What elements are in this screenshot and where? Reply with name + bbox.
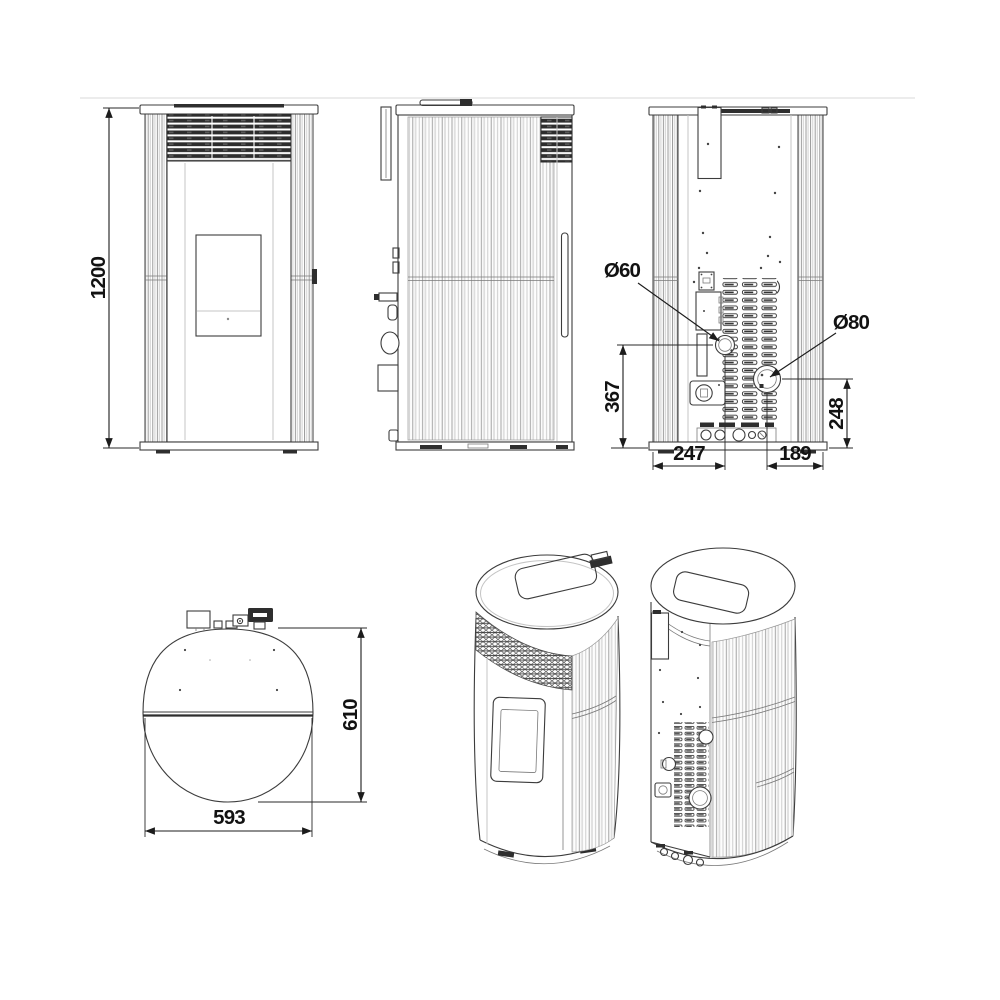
rear-terminal-box — [696, 272, 723, 330]
side-view — [374, 99, 574, 450]
rear-slot — [697, 334, 707, 376]
flue-outlet-port — [754, 366, 781, 393]
dim-flue-height-label: 248 — [825, 398, 848, 430]
front-view — [140, 104, 318, 454]
rear-hopper-lid — [698, 108, 721, 179]
front-door-panel — [167, 161, 291, 442]
rear-perspective-box — [652, 613, 669, 659]
rear-view — [649, 106, 827, 454]
dim-intake-diameter-label: Ø60 — [604, 259, 641, 282]
side-top-cap — [396, 105, 574, 115]
front-right-column — [291, 114, 313, 442]
stove-dimension-diagram: 1200 — [0, 0, 1000, 1000]
perspective-door-window — [491, 697, 546, 783]
rear-perspective-valve — [663, 758, 676, 771]
dim-height-label: 1200 — [87, 256, 110, 299]
top-rear-fittings — [187, 608, 273, 631]
dim-intake-height-label: 367 — [601, 381, 624, 413]
dim-flue-offset-label: 189 — [779, 442, 811, 465]
dim-overall-height: 1200 — [87, 108, 139, 448]
door-handle — [312, 269, 317, 284]
perspective-side-flutes — [572, 618, 618, 852]
dim-intake-offset-label: 247 — [673, 442, 705, 465]
side-flutes — [408, 117, 554, 440]
rear-perspective-socket — [655, 783, 671, 797]
chimney-stub — [588, 551, 612, 569]
dim-depth-label: 610 — [339, 699, 362, 731]
rear-perspective-flutes — [712, 619, 795, 857]
air-intake-port — [716, 336, 735, 355]
dim-width-label: 593 — [213, 806, 245, 829]
front-top-grille — [167, 114, 291, 161]
front-cap-trim — [174, 104, 284, 108]
rear-perspective-bottom-connections — [656, 844, 704, 866]
front-left-column — [145, 114, 167, 442]
perspective-rear-view — [651, 548, 796, 866]
dim-flue-diameter-label: Ø80 — [833, 311, 870, 334]
power-socket — [690, 381, 725, 405]
rear-top-ellipse — [651, 548, 795, 624]
top-view — [143, 608, 313, 802]
drawing-canvas: 1200 — [0, 0, 1000, 1000]
front-base — [140, 442, 318, 450]
side-rear-fittings — [374, 107, 399, 441]
rear-perspective-port-small — [699, 730, 713, 744]
perspective-front-view — [474, 551, 620, 864]
rear-right-column — [798, 115, 823, 442]
rear-left-column — [653, 115, 678, 442]
rear-perspective-flue — [689, 787, 711, 809]
rear-bottom-connections — [697, 428, 776, 442]
